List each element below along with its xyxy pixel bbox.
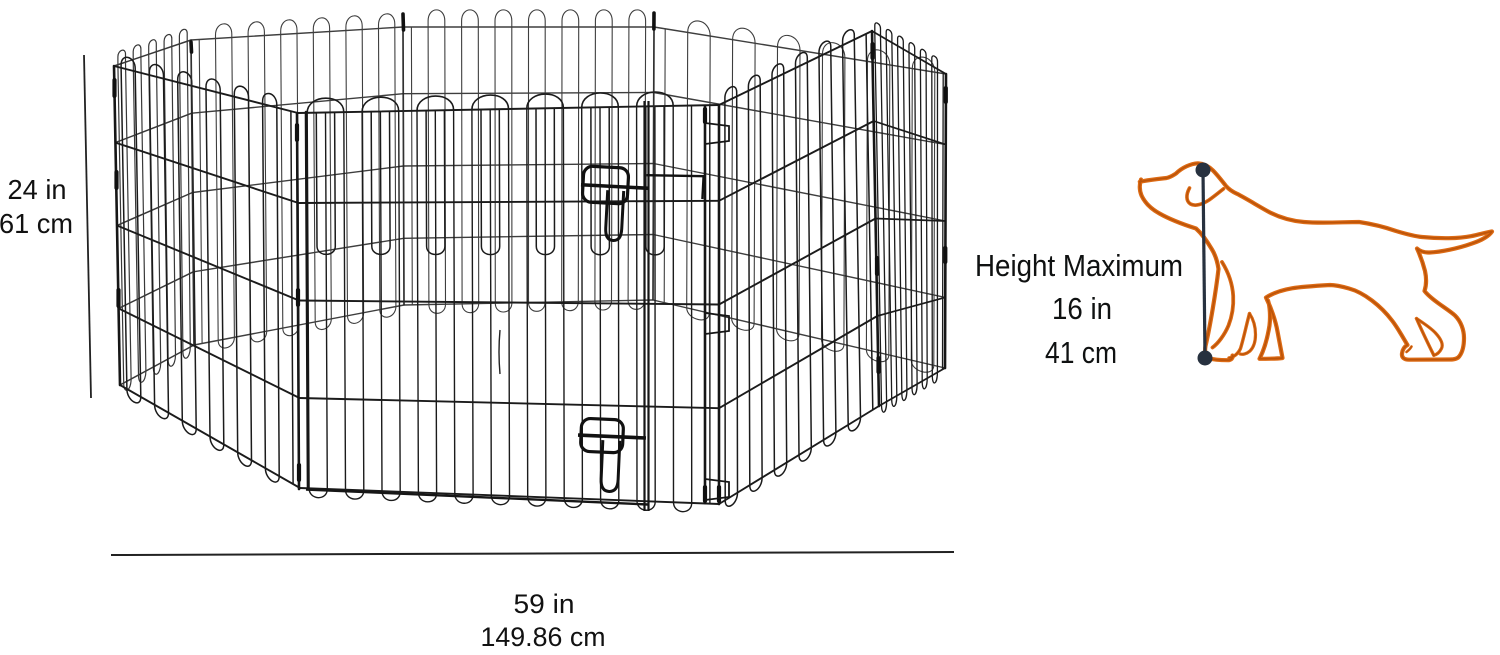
svg-text:Height Maximum: Height Maximum [975,248,1183,283]
svg-text:61 cm: 61 cm [0,208,73,239]
svg-text:16 in: 16 in [1052,291,1112,326]
svg-text:149.86 cm: 149.86 cm [481,622,606,650]
svg-text:24 in: 24 in [8,174,67,205]
svg-text:59 in: 59 in [514,589,575,619]
svg-text:41 cm: 41 cm [1045,335,1117,370]
